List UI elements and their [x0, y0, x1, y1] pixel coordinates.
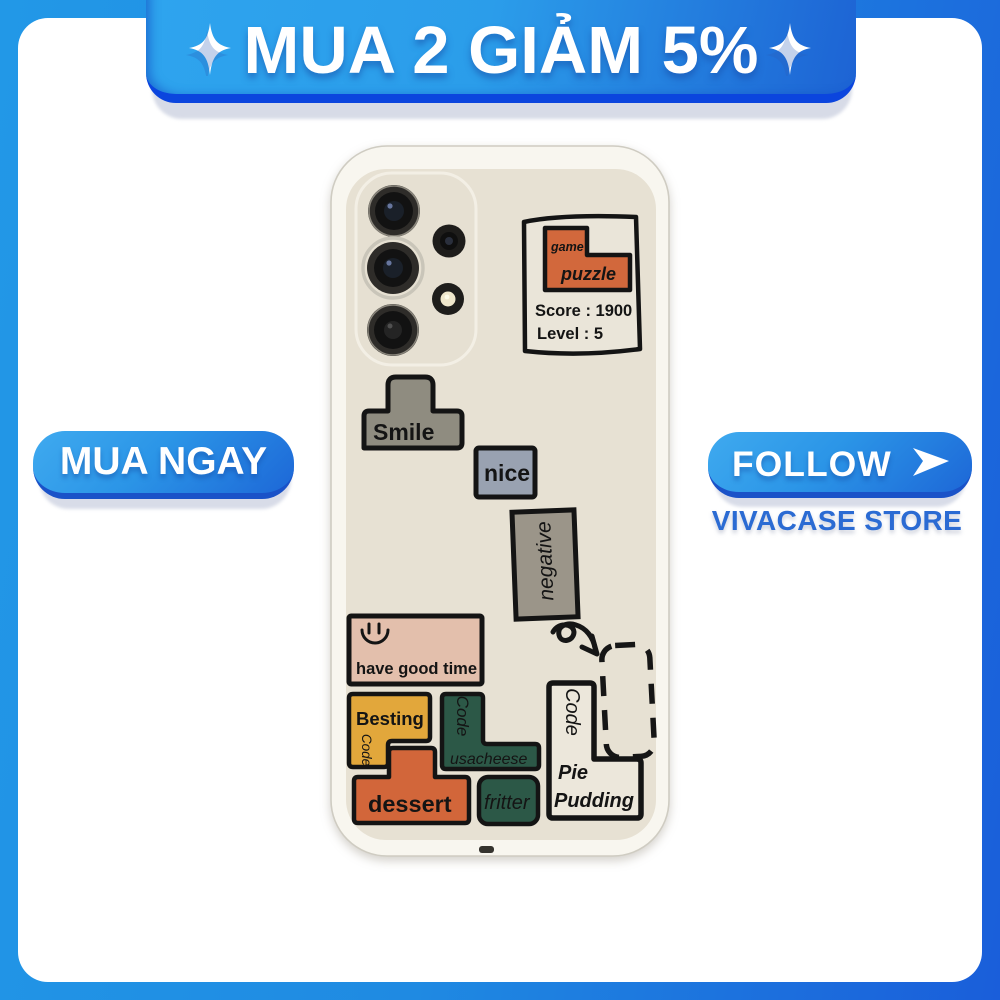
svg-text:Code: Code — [561, 688, 583, 736]
svg-text:Pudding: Pudding — [554, 790, 634, 812]
svg-text:Besting: Besting — [356, 708, 424, 729]
svg-text:Smile: Smile — [373, 419, 434, 445]
svg-text:have good time: have good time — [356, 660, 477, 678]
svg-text:fritter: fritter — [484, 792, 531, 814]
svg-text:Code: Code — [453, 696, 472, 737]
svg-text:Score : 1900: Score : 1900 — [535, 302, 632, 320]
svg-text:negative: negative — [532, 521, 558, 601]
svg-text:dessert: dessert — [368, 791, 452, 817]
svg-text:game: game — [550, 240, 584, 254]
svg-text:puzzle: puzzle — [560, 264, 616, 284]
svg-text:usacheese: usacheese — [450, 751, 527, 768]
svg-text:Code: Code — [359, 734, 374, 766]
svg-text:Level : 5: Level : 5 — [537, 325, 603, 343]
svg-text:Pie: Pie — [558, 762, 588, 784]
svg-text:nice: nice — [484, 460, 530, 486]
